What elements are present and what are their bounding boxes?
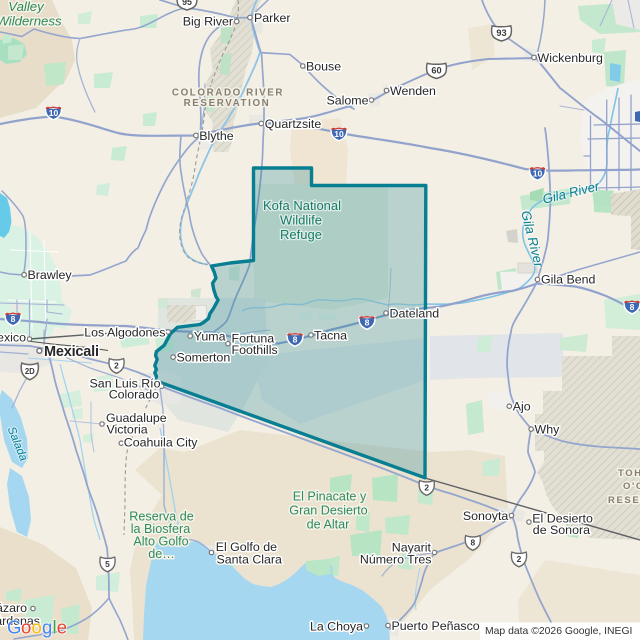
svg-text:g: g xyxy=(42,617,52,638)
svg-text:de Altar: de Altar xyxy=(307,517,350,531)
svg-text:Big River: Big River xyxy=(183,15,233,29)
svg-text:Wickenburg: Wickenburg xyxy=(538,51,604,65)
svg-text:Foothills: Foothills xyxy=(232,343,278,357)
svg-text:Calexico: Calexico xyxy=(0,330,26,344)
svg-text:Wilderness: Wilderness xyxy=(0,14,62,29)
svg-text:8: 8 xyxy=(470,538,475,548)
svg-text:60: 60 xyxy=(431,65,441,75)
svg-text:10: 10 xyxy=(533,169,543,179)
svg-text:La Choya: La Choya xyxy=(310,619,363,633)
svg-text:Blythe: Blythe xyxy=(199,129,234,143)
svg-text:8: 8 xyxy=(365,318,370,328)
svg-text:10: 10 xyxy=(334,129,344,139)
svg-text:Yuma: Yuma xyxy=(194,330,226,344)
svg-text:Salome: Salome xyxy=(326,94,368,108)
svg-text:2: 2 xyxy=(517,554,522,564)
svg-text:o: o xyxy=(21,617,31,638)
svg-text:Dateland: Dateland xyxy=(390,307,440,321)
svg-text:Gran Desierto: Gran Desierto xyxy=(289,504,367,518)
svg-text:TOHONO: TOHONO xyxy=(618,468,640,479)
svg-text:2: 2 xyxy=(114,361,119,371)
svg-text:Valley: Valley xyxy=(8,0,45,14)
svg-text:95: 95 xyxy=(182,0,192,7)
svg-text:Puerto Peñasco: Puerto Peñasco xyxy=(392,619,480,633)
svg-text:Colorado: Colorado xyxy=(109,387,159,401)
svg-text:de…: de… xyxy=(148,547,175,561)
svg-text:Somerton: Somerton xyxy=(177,351,231,365)
svg-text:Ajo: Ajo xyxy=(513,400,531,414)
svg-text:RESERVATION: RESERVATION xyxy=(608,495,640,506)
svg-text:COLORADO RIVER: COLORADO RIVER xyxy=(172,88,284,99)
svg-text:Refuge: Refuge xyxy=(280,227,322,242)
svg-text:Victoria: Victoria xyxy=(107,423,148,437)
svg-text:Tacna: Tacna xyxy=(314,329,347,343)
svg-text:93: 93 xyxy=(496,28,506,38)
svg-text:Map data ©2026 Google, INEGI: Map data ©2026 Google, INEGI xyxy=(485,626,632,637)
svg-text:8: 8 xyxy=(11,314,16,324)
svg-text:Mexicali: Mexicali xyxy=(44,344,99,360)
svg-text:de Sonora: de Sonora xyxy=(533,523,590,537)
svg-text:Why: Why xyxy=(535,423,561,437)
svg-text:8: 8 xyxy=(630,302,635,312)
svg-text:e: e xyxy=(57,617,67,638)
svg-text:Número Tres: Número Tres xyxy=(360,553,432,567)
svg-text:RESERVATION: RESERVATION xyxy=(184,98,271,109)
svg-text:5: 5 xyxy=(105,559,110,569)
svg-text:Sonoyta: Sonoyta xyxy=(463,509,509,523)
svg-text:Brawley: Brawley xyxy=(28,268,73,282)
svg-text:10: 10 xyxy=(49,108,59,118)
svg-text:G: G xyxy=(7,617,21,638)
svg-text:Los Algodones: Los Algodones xyxy=(84,325,165,339)
svg-text:o: o xyxy=(32,617,42,638)
svg-text:Lázaro: Lázaro xyxy=(0,601,27,615)
svg-text:Wildlife: Wildlife xyxy=(280,213,322,228)
svg-text:Quartzsite: Quartzsite xyxy=(265,117,322,131)
svg-text:O'ODHAM: O'ODHAM xyxy=(623,481,640,492)
svg-text:Gila Bend: Gila Bend xyxy=(541,273,596,287)
svg-text:Coahuila City: Coahuila City xyxy=(124,436,198,450)
svg-text:8: 8 xyxy=(293,335,298,345)
svg-text:Wenden: Wenden xyxy=(390,84,436,98)
svg-text:Santa Clara: Santa Clara xyxy=(217,553,283,567)
svg-text:2: 2 xyxy=(424,483,429,493)
svg-text:El Pinacate y: El Pinacate y xyxy=(293,490,367,504)
svg-text:Kofa National: Kofa National xyxy=(263,198,341,213)
svg-text:2D: 2D xyxy=(25,367,35,376)
svg-text:Bouse: Bouse xyxy=(306,59,341,73)
svg-text:Parker: Parker xyxy=(254,11,291,25)
